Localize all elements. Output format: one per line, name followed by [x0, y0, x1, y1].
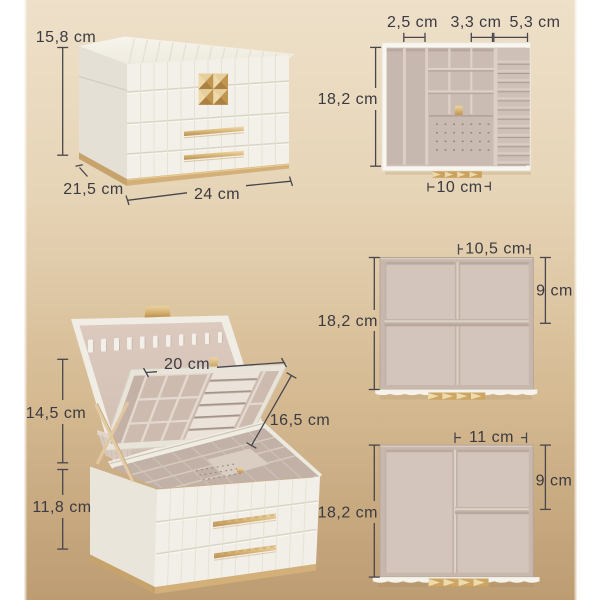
svg-text:18,2 cm: 18,2 cm	[318, 313, 378, 330]
svg-text:21,5 cm: 21,5 cm	[63, 181, 123, 198]
svg-text:24 cm: 24 cm	[194, 186, 240, 203]
svg-text:11 cm: 11 cm	[469, 429, 514, 446]
svg-text:16,5 cm: 16,5 cm	[270, 412, 330, 429]
svg-text:9 cm: 9 cm	[536, 473, 573, 490]
svg-text:3,3 cm: 3,3 cm	[450, 14, 501, 31]
svg-text:10,5 cm: 10,5 cm	[465, 241, 525, 258]
svg-text:20 cm: 20 cm	[164, 356, 210, 373]
svg-text:18,2 cm: 18,2 cm	[318, 505, 378, 522]
svg-text:10 cm: 10 cm	[436, 179, 482, 196]
svg-text:5,3 cm: 5,3 cm	[509, 14, 560, 31]
svg-text:15,8 cm: 15,8 cm	[36, 29, 96, 46]
svg-text:9 cm: 9 cm	[536, 283, 573, 300]
svg-text:14,5 cm: 14,5 cm	[26, 405, 86, 422]
svg-text:18,2 cm: 18,2 cm	[318, 91, 378, 108]
svg-text:11,8 cm: 11,8 cm	[32, 499, 91, 516]
svg-text:2,5 cm: 2,5 cm	[387, 14, 438, 31]
